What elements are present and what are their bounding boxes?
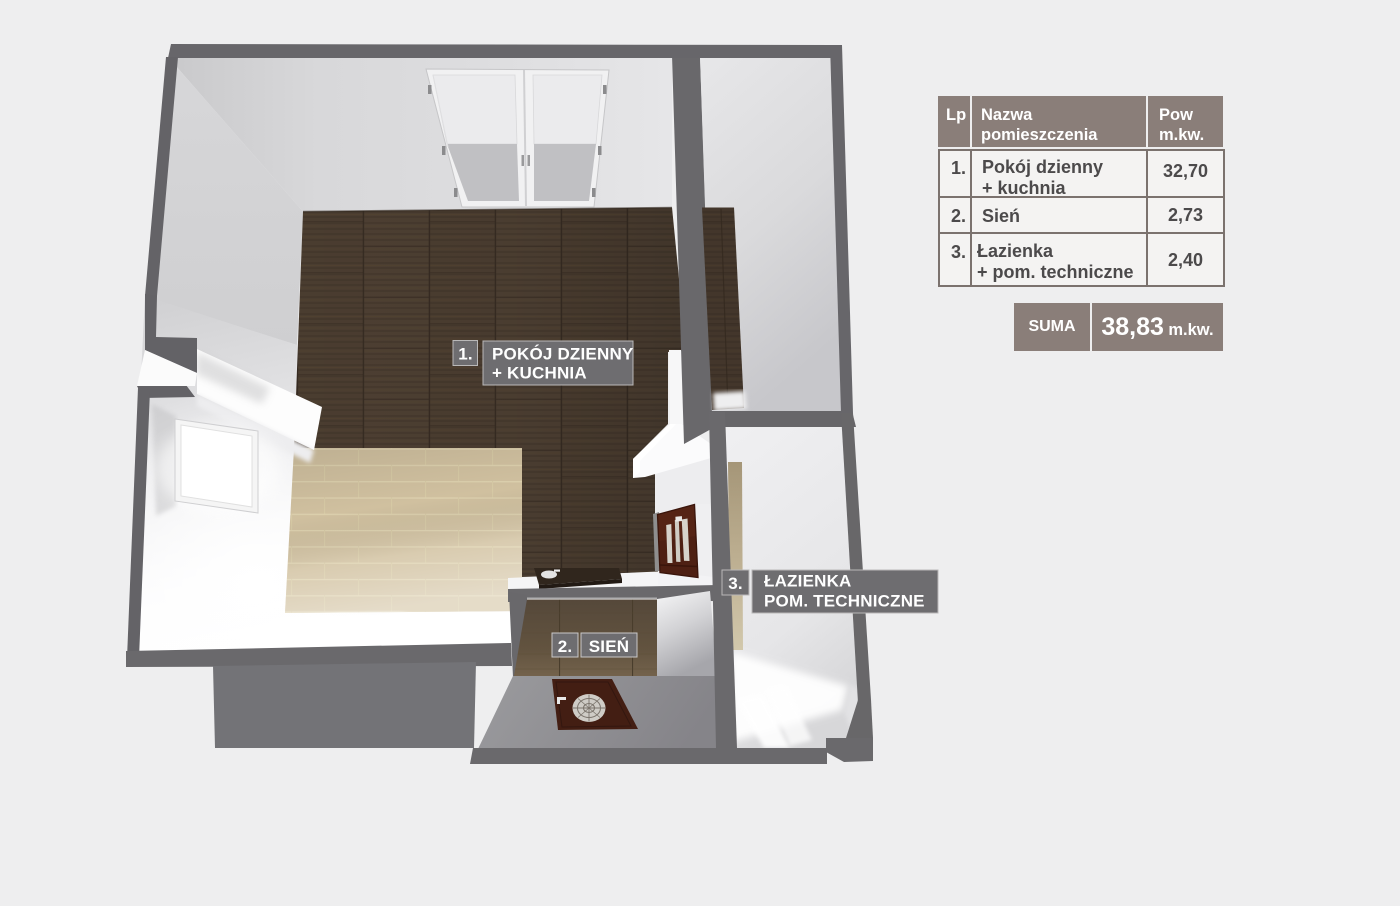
svg-text:POM. TECHNICZNE: POM. TECHNICZNE bbox=[764, 592, 925, 611]
svg-text:1.: 1. bbox=[458, 345, 473, 364]
svg-text:POKÓJ DZIENNY: POKÓJ DZIENNY bbox=[492, 345, 634, 364]
svg-text:+ KUCHNIA: + KUCHNIA bbox=[492, 364, 587, 383]
svg-text:3.: 3. bbox=[728, 574, 743, 593]
svg-text:ŁAZIENKA: ŁAZIENKA bbox=[764, 572, 852, 591]
svg-text:2.: 2. bbox=[558, 637, 573, 656]
svg-text:SIEŃ: SIEŃ bbox=[589, 637, 629, 656]
